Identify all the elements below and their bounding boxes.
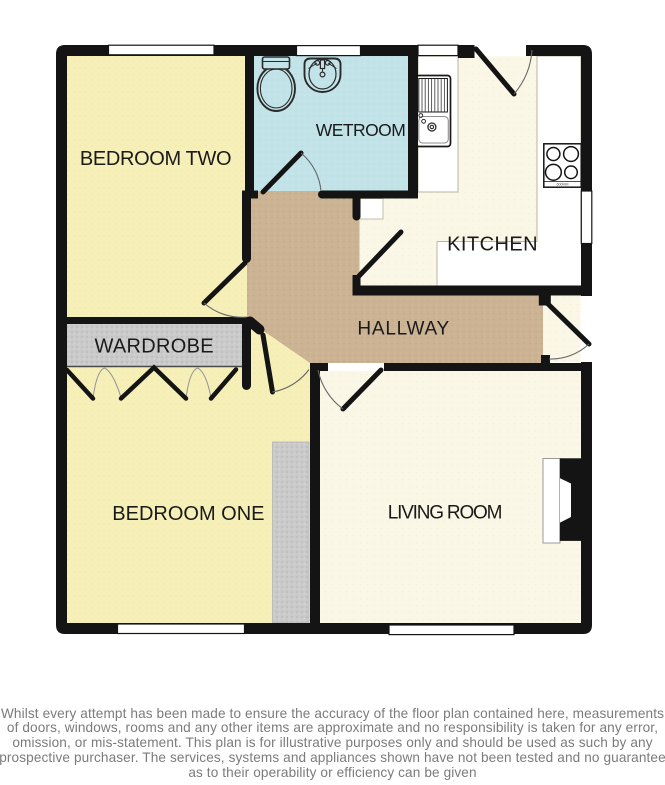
svg-text:LIVING ROOM: LIVING ROOM <box>388 503 502 524</box>
svg-text:BEDROOM TWO: BEDROOM TWO <box>80 148 231 170</box>
svg-text:WARDROBE: WARDROBE <box>94 336 213 358</box>
svg-text:KITCHEN: KITCHEN <box>447 233 538 255</box>
svg-text:WETROOM: WETROOM <box>316 120 405 140</box>
svg-text:600MM: 600MM <box>557 183 569 187</box>
svg-text:BEDROOM ONE: BEDROOM ONE <box>112 503 264 525</box>
svg-text:HALLWAY: HALLWAY <box>357 319 450 340</box>
